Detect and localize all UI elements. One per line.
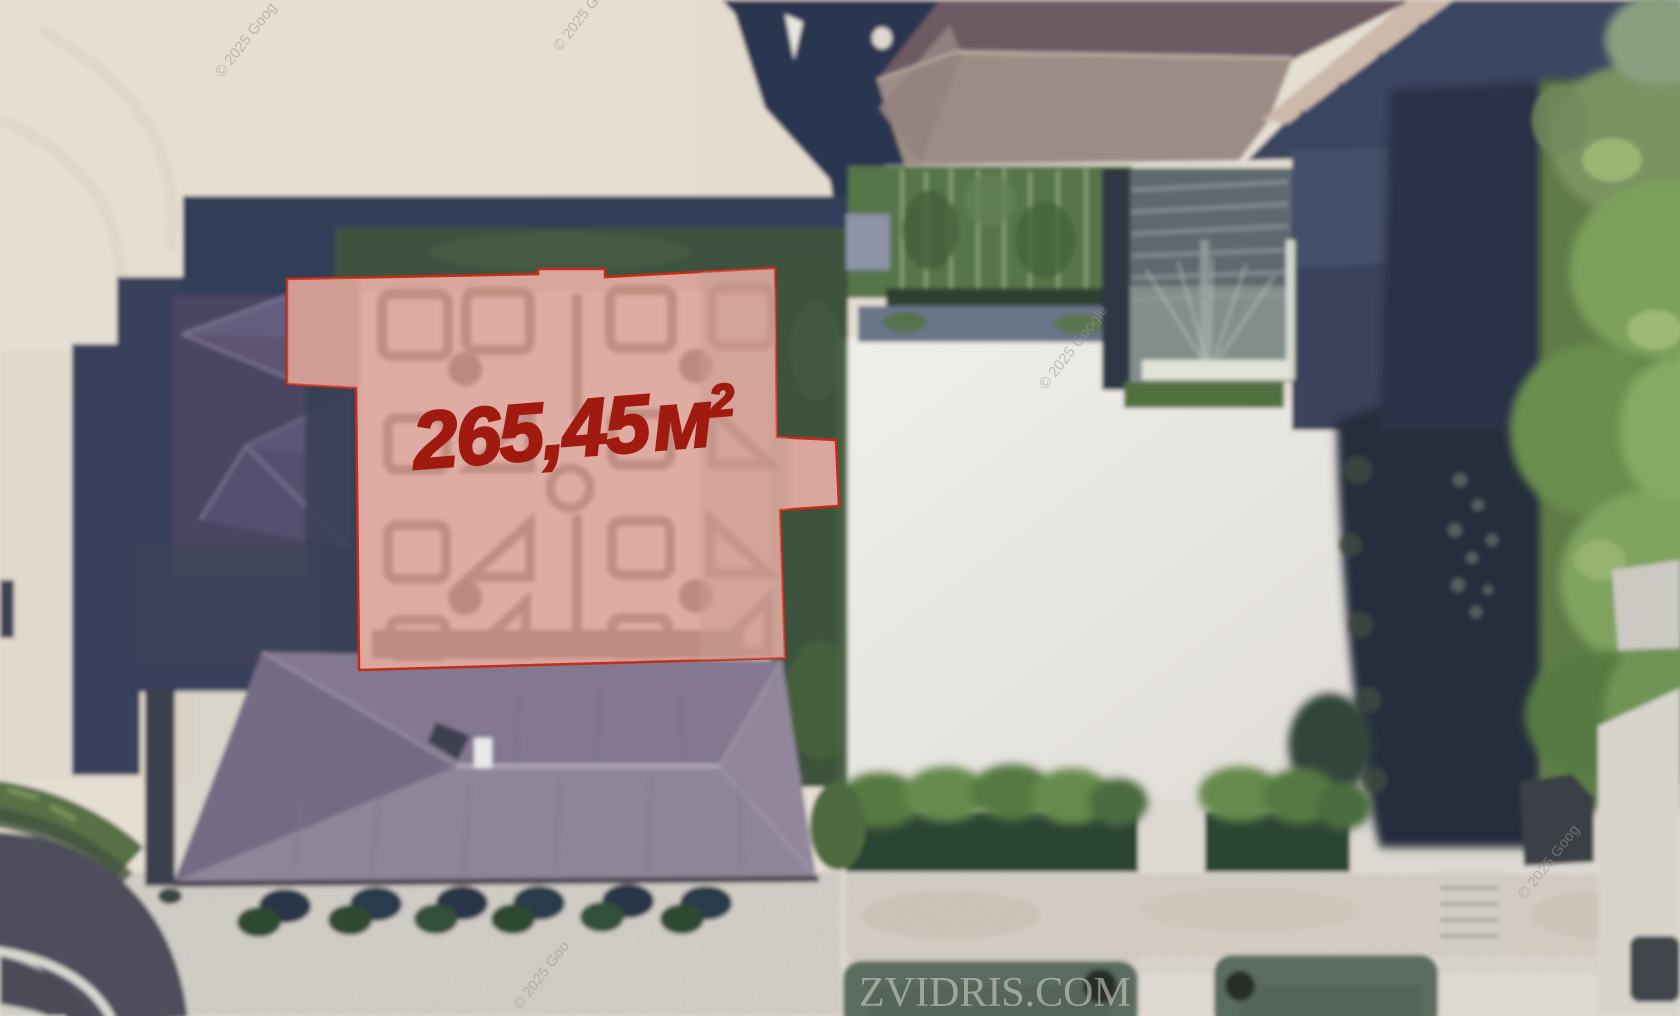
svg-text:ZVIDRIS.COM: ZVIDRIS.COM (859, 970, 1131, 1016)
